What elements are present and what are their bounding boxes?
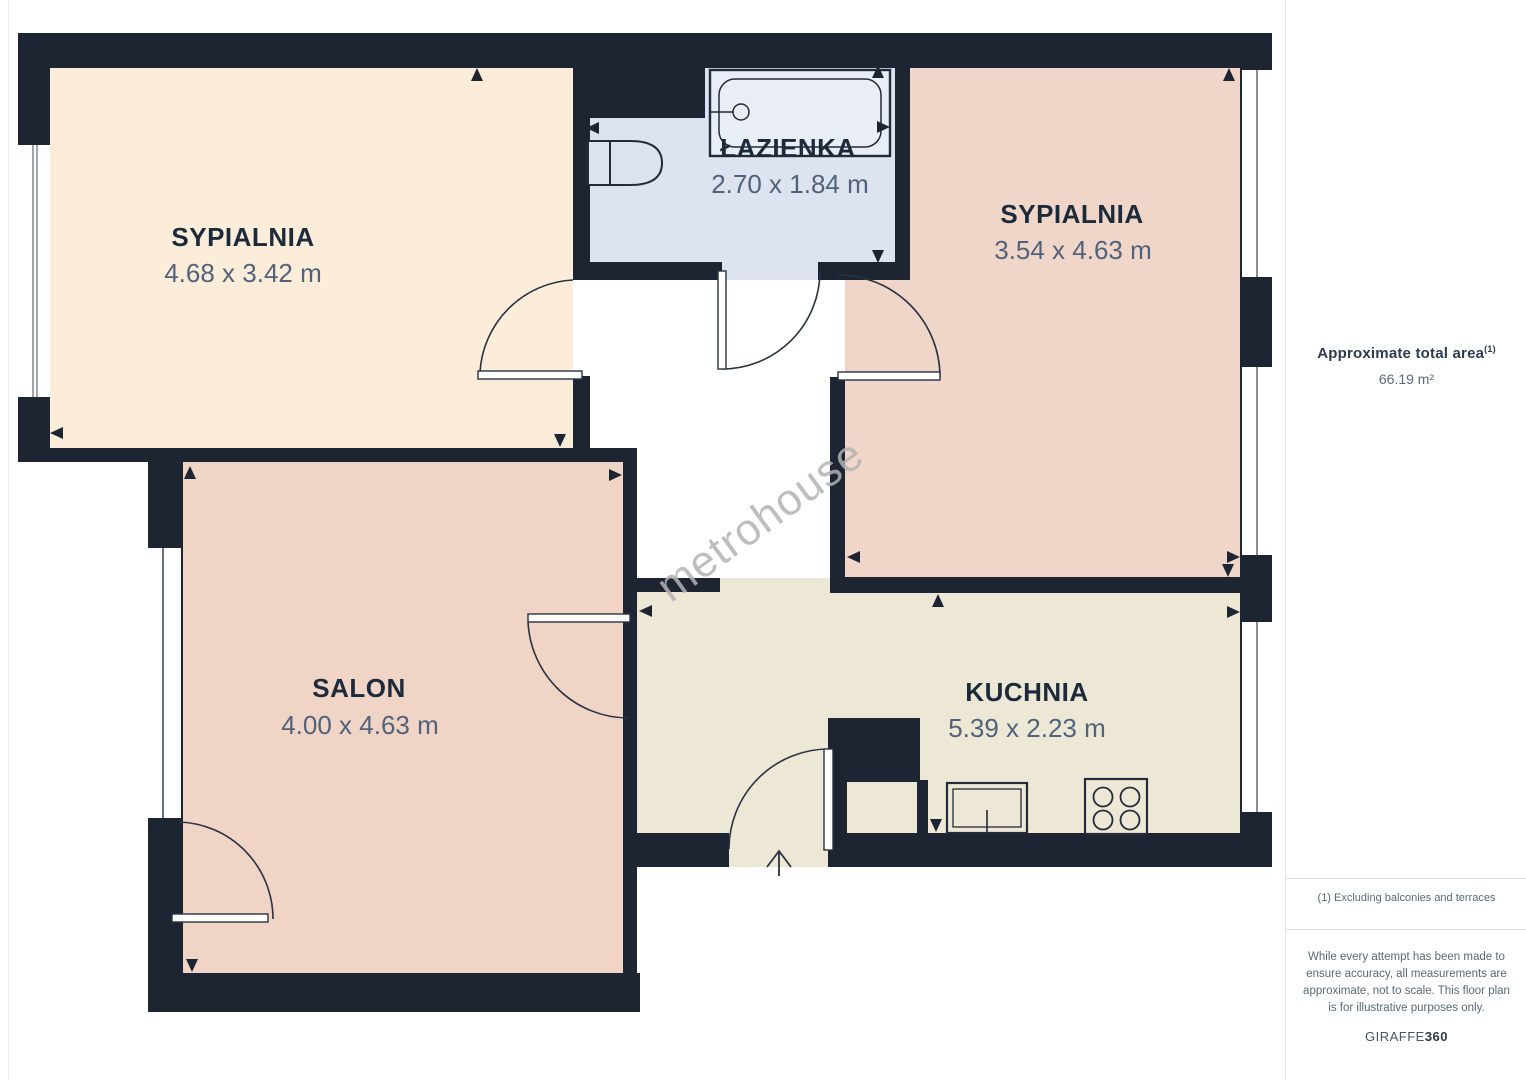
room-label-living: SALON — [312, 673, 406, 703]
giraffe360-logo: GIRAFFE360 — [1286, 1029, 1526, 1044]
window — [1242, 367, 1272, 555]
room-label-kitchen: KUCHNIA — [965, 677, 1088, 707]
room-label-bedroom-1: SYPIALNIA — [171, 222, 314, 252]
room-dims-bedroom-1: 4.68 x 3.42 m — [164, 258, 322, 288]
disclaimer-text: While every attempt has been made to ens… — [1302, 949, 1511, 1017]
total-area-block: Approximate total area(1) 66.19 m² — [1286, 344, 1526, 387]
room-dims-living: 4.00 x 4.63 m — [281, 710, 439, 740]
area-footnote: (1) Excluding balconies and terraces — [1296, 892, 1517, 904]
floor-plan: SYPIALNIA 4.68 x 3.42 m ŁAZIENKA 2.70 x … — [0, 0, 1285, 1080]
room-dims-kitchen: 5.39 x 2.23 m — [948, 713, 1106, 743]
room-label-bedroom-2: SYPIALNIA — [1000, 199, 1143, 229]
total-area-title: Approximate total area(1) — [1286, 344, 1526, 362]
divider — [1286, 878, 1526, 879]
door-bathroom — [718, 271, 820, 369]
window — [1242, 70, 1272, 277]
divider — [1286, 929, 1526, 930]
room-kitchen — [637, 592, 1240, 833]
window — [18, 145, 50, 397]
toilet-icon — [588, 141, 662, 185]
room-dims-bathroom: 2.70 x 1.84 m — [711, 169, 869, 199]
info-sidebar: Approximate total area(1) 66.19 m² (1) E… — [1285, 0, 1526, 1080]
room-label-bathroom: ŁAZIENKA — [720, 133, 855, 163]
window — [1242, 622, 1272, 812]
window — [148, 548, 181, 818]
footnote-marker: (1) — [1484, 344, 1496, 354]
stove-icon — [1085, 779, 1147, 834]
total-area-value: 66.19 m² — [1286, 371, 1526, 387]
room-dims-bedroom-2: 3.54 x 4.63 m — [994, 235, 1152, 265]
